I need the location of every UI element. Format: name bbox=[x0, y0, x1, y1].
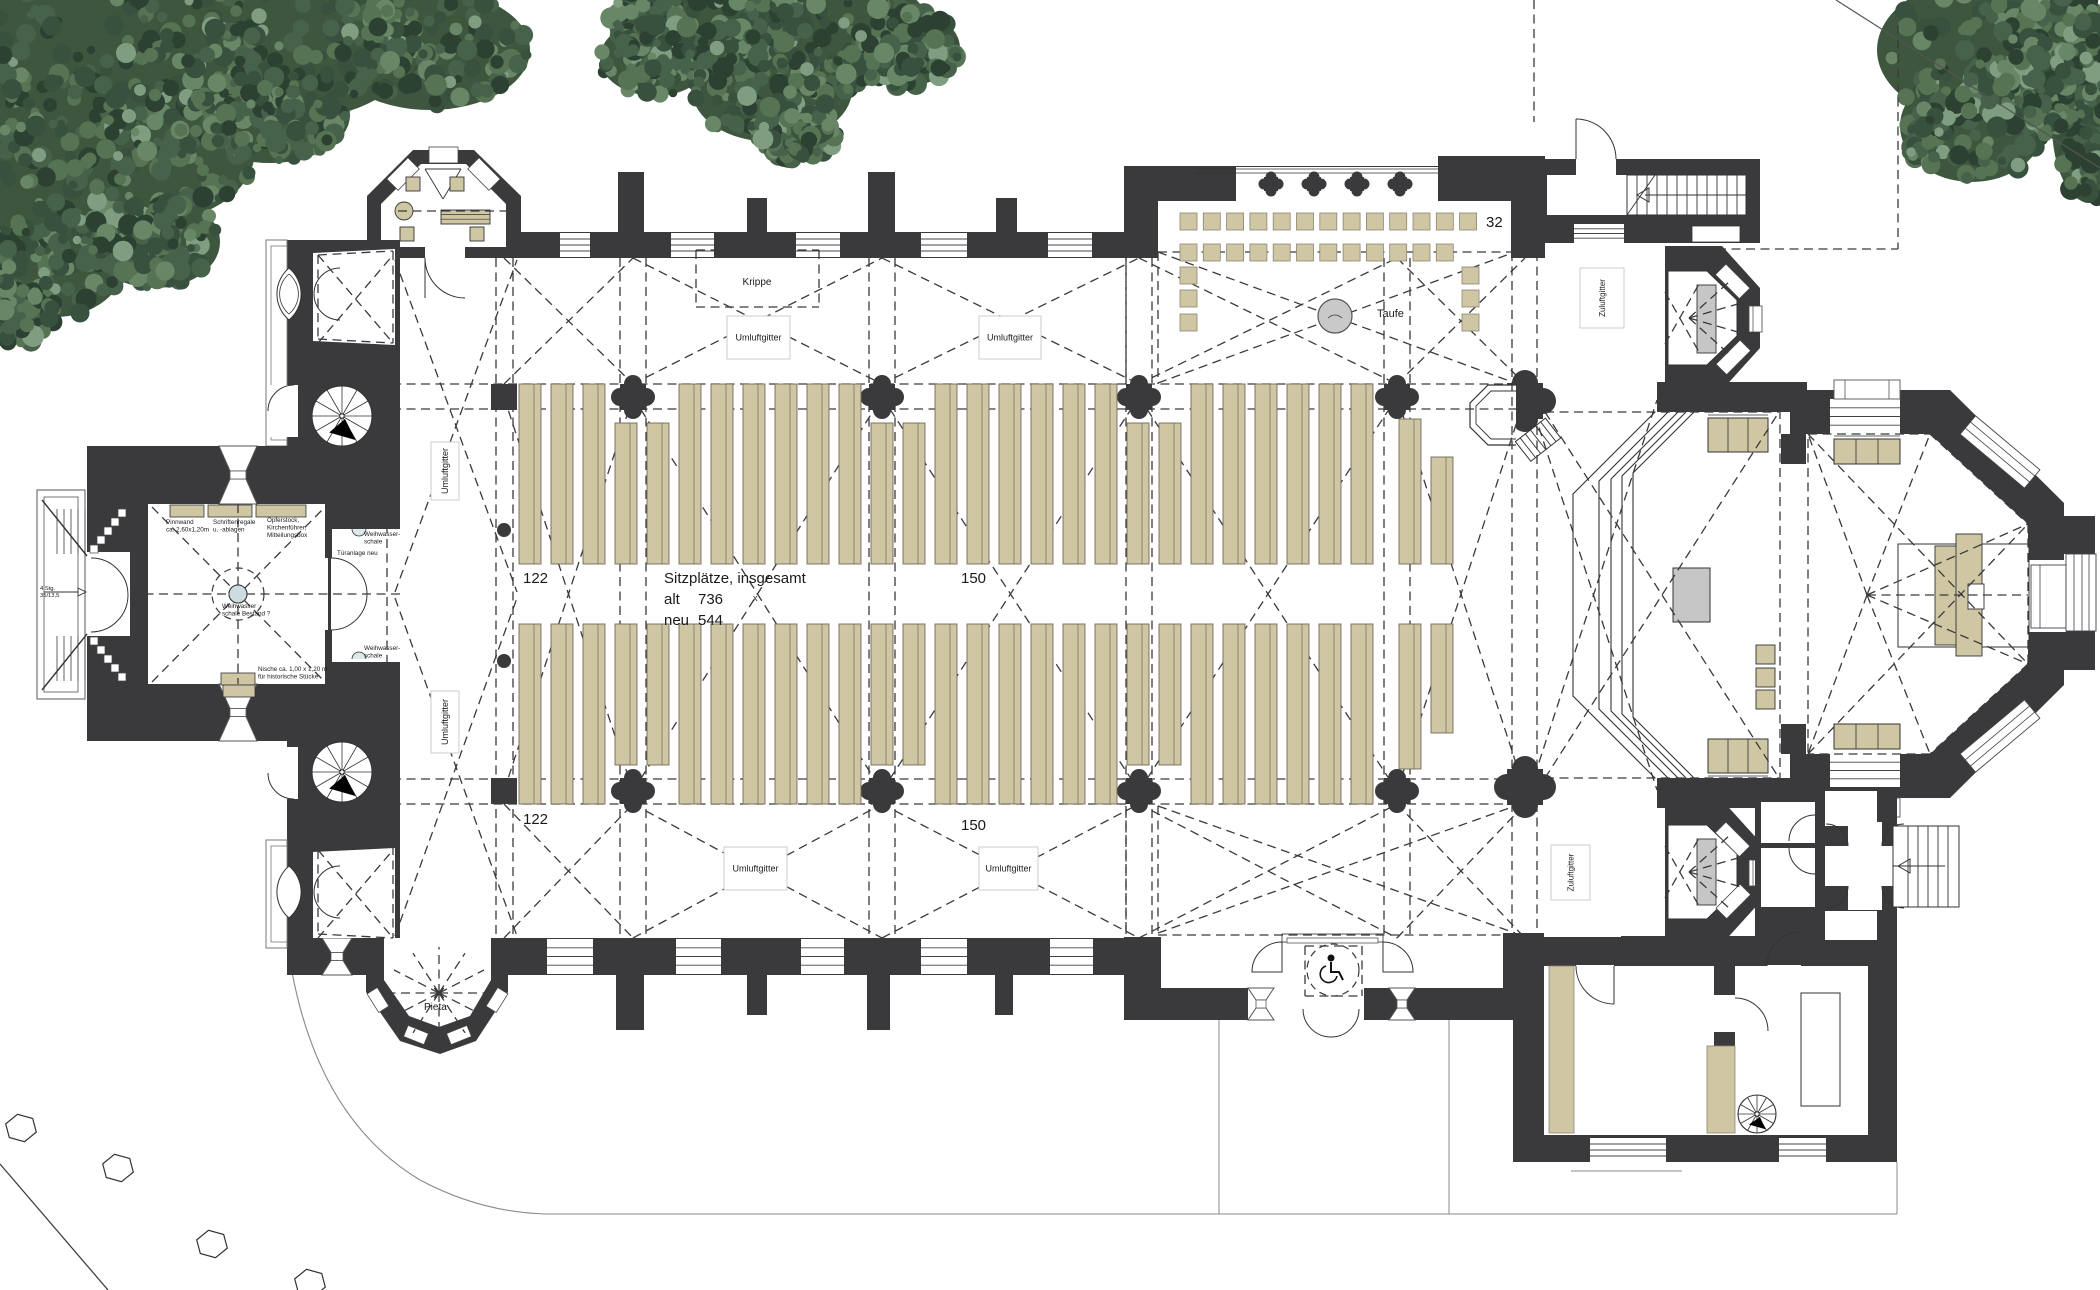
svg-text:122: 122 bbox=[523, 570, 548, 587]
svg-text:Sitzplätze, insgesamt: Sitzplätze, insgesamt bbox=[664, 570, 807, 587]
svg-text:neu: neu bbox=[664, 612, 689, 629]
svg-text:Umluftgitter: Umluftgitter bbox=[732, 864, 778, 874]
svg-text:Zuluftgitter: Zuluftgitter bbox=[1598, 279, 1607, 317]
svg-text:Taufe: Taufe bbox=[1377, 308, 1404, 320]
svg-text:Krippe: Krippe bbox=[743, 277, 772, 288]
svg-text:122: 122 bbox=[523, 811, 548, 828]
svg-text:544: 544 bbox=[698, 612, 723, 629]
svg-text:Umluftgitter: Umluftgitter bbox=[985, 864, 1031, 874]
svg-text:Umluftgitter: Umluftgitter bbox=[735, 333, 781, 343]
svg-text:Zuluftgitter: Zuluftgitter bbox=[1567, 853, 1576, 891]
svg-text:Nische ca. 1,00 x 1,20 mfür hi: Nische ca. 1,00 x 1,20 mfür historische … bbox=[258, 666, 327, 681]
svg-text:150: 150 bbox=[961, 817, 986, 834]
svg-text:150: 150 bbox=[961, 570, 986, 587]
svg-text:736: 736 bbox=[698, 591, 723, 608]
svg-text:Umluftgitter: Umluftgitter bbox=[987, 333, 1033, 343]
svg-text:Türanlage neu: Türanlage neu bbox=[337, 550, 378, 557]
svg-text:Umluftgitter: Umluftgitter bbox=[440, 699, 450, 745]
svg-text:alt: alt bbox=[664, 591, 681, 608]
svg-text:32: 32 bbox=[1486, 214, 1503, 231]
svg-text:Umluftgitter: Umluftgitter bbox=[440, 448, 450, 494]
svg-text:x: x bbox=[753, 593, 758, 603]
